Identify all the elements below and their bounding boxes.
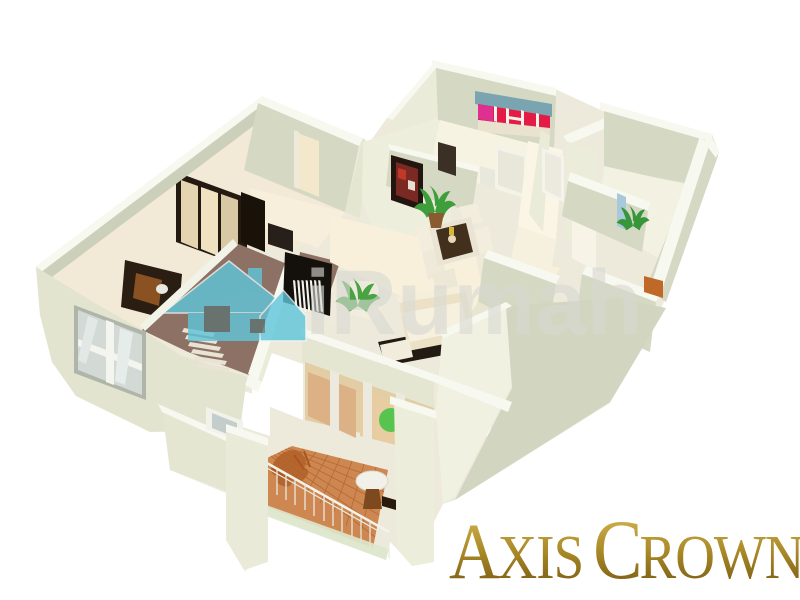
svg-text:iRumah: iRumah: [305, 252, 642, 354]
